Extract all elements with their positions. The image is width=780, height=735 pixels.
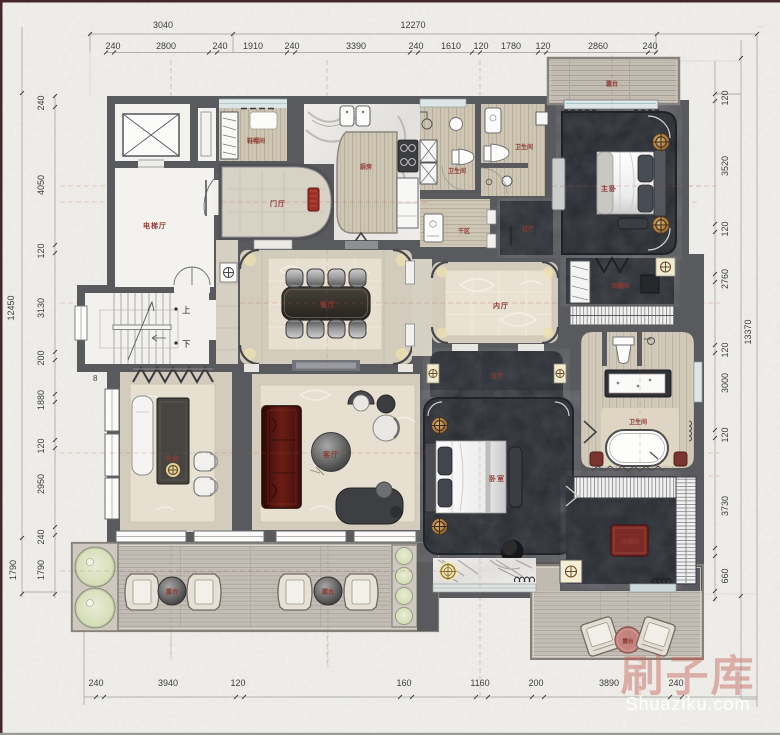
svg-text:3000: 3000: [720, 373, 730, 393]
svg-text:240: 240: [88, 678, 103, 688]
svg-text:200: 200: [36, 350, 46, 365]
svg-text:露台: 露台: [166, 588, 178, 596]
svg-text:露台: 露台: [622, 637, 634, 645]
svg-text:8: 8: [93, 374, 98, 383]
svg-text:200: 200: [528, 678, 543, 688]
svg-text:露台: 露台: [322, 588, 334, 596]
svg-text:120: 120: [36, 438, 46, 453]
svg-text:露台: 露台: [606, 80, 618, 88]
svg-text:120: 120: [36, 243, 46, 258]
svg-text:鞋帽间: 鞋帽间: [247, 137, 265, 145]
svg-text:120: 120: [720, 221, 730, 236]
svg-text:上: 上: [182, 305, 191, 315]
svg-text:120: 120: [230, 678, 245, 688]
svg-text:衣帽间: 衣帽间: [621, 538, 639, 546]
svg-text:门厅: 门厅: [270, 199, 286, 208]
svg-text:卧室: 卧室: [489, 474, 505, 483]
svg-text:2760: 2760: [720, 269, 730, 289]
svg-text:餐厅: 餐厅: [319, 300, 336, 309]
svg-text:120: 120: [720, 342, 730, 357]
svg-text:内厅: 内厅: [493, 301, 509, 310]
svg-text:1790: 1790: [8, 560, 18, 580]
svg-text:3730: 3730: [720, 496, 730, 516]
svg-text:1780: 1780: [501, 41, 521, 51]
svg-text:1910: 1910: [243, 41, 263, 51]
svg-text:240: 240: [642, 41, 657, 51]
svg-text:13370: 13370: [743, 319, 753, 344]
svg-text:过厅: 过厅: [522, 225, 534, 233]
svg-text:3040: 3040: [153, 20, 173, 30]
svg-text:衣帽间: 衣帽间: [611, 282, 629, 290]
svg-text:厨房: 厨房: [360, 163, 372, 171]
svg-text:240: 240: [408, 41, 423, 51]
svg-text:240: 240: [36, 95, 46, 110]
svg-text:3890: 3890: [599, 678, 619, 688]
svg-text:240: 240: [284, 41, 299, 51]
svg-text:3130: 3130: [36, 298, 46, 318]
svg-text:3390: 3390: [346, 41, 366, 51]
svg-text:3940: 3940: [158, 678, 178, 688]
svg-text:240: 240: [105, 41, 120, 51]
svg-text:240: 240: [212, 41, 227, 51]
svg-text:3520: 3520: [720, 156, 730, 176]
svg-text:客厅: 客厅: [322, 450, 339, 459]
svg-text:4050: 4050: [36, 175, 46, 195]
svg-text:书房: 书房: [164, 454, 180, 463]
svg-text:12270: 12270: [400, 20, 425, 30]
svg-text:卫生间: 卫生间: [629, 418, 647, 426]
svg-text:干区: 干区: [458, 227, 470, 235]
svg-text:2950: 2950: [36, 474, 46, 494]
svg-text:120: 120: [535, 41, 550, 51]
svg-text:1880: 1880: [36, 390, 46, 410]
svg-text:2860: 2860: [588, 41, 608, 51]
svg-text:120: 120: [473, 41, 488, 51]
svg-text:卫生间: 卫生间: [448, 167, 466, 175]
svg-text:2800: 2800: [156, 41, 176, 51]
svg-text:660: 660: [720, 568, 730, 583]
svg-text:120: 120: [720, 90, 730, 105]
svg-text:下: 下: [182, 339, 191, 349]
svg-text:160: 160: [396, 678, 411, 688]
svg-text:12450: 12450: [6, 295, 16, 320]
svg-text:主卧: 主卧: [601, 184, 617, 193]
svg-text:Shuaziku.com: Shuaziku.com: [625, 694, 750, 714]
svg-text:1610: 1610: [441, 41, 461, 51]
svg-text:120: 120: [720, 427, 730, 442]
svg-text:卫生间: 卫生间: [515, 143, 533, 151]
svg-text:过厅: 过厅: [491, 372, 503, 380]
svg-text:240: 240: [36, 529, 46, 544]
svg-text:电梯厅: 电梯厅: [143, 221, 167, 230]
svg-text:1790: 1790: [36, 560, 46, 580]
